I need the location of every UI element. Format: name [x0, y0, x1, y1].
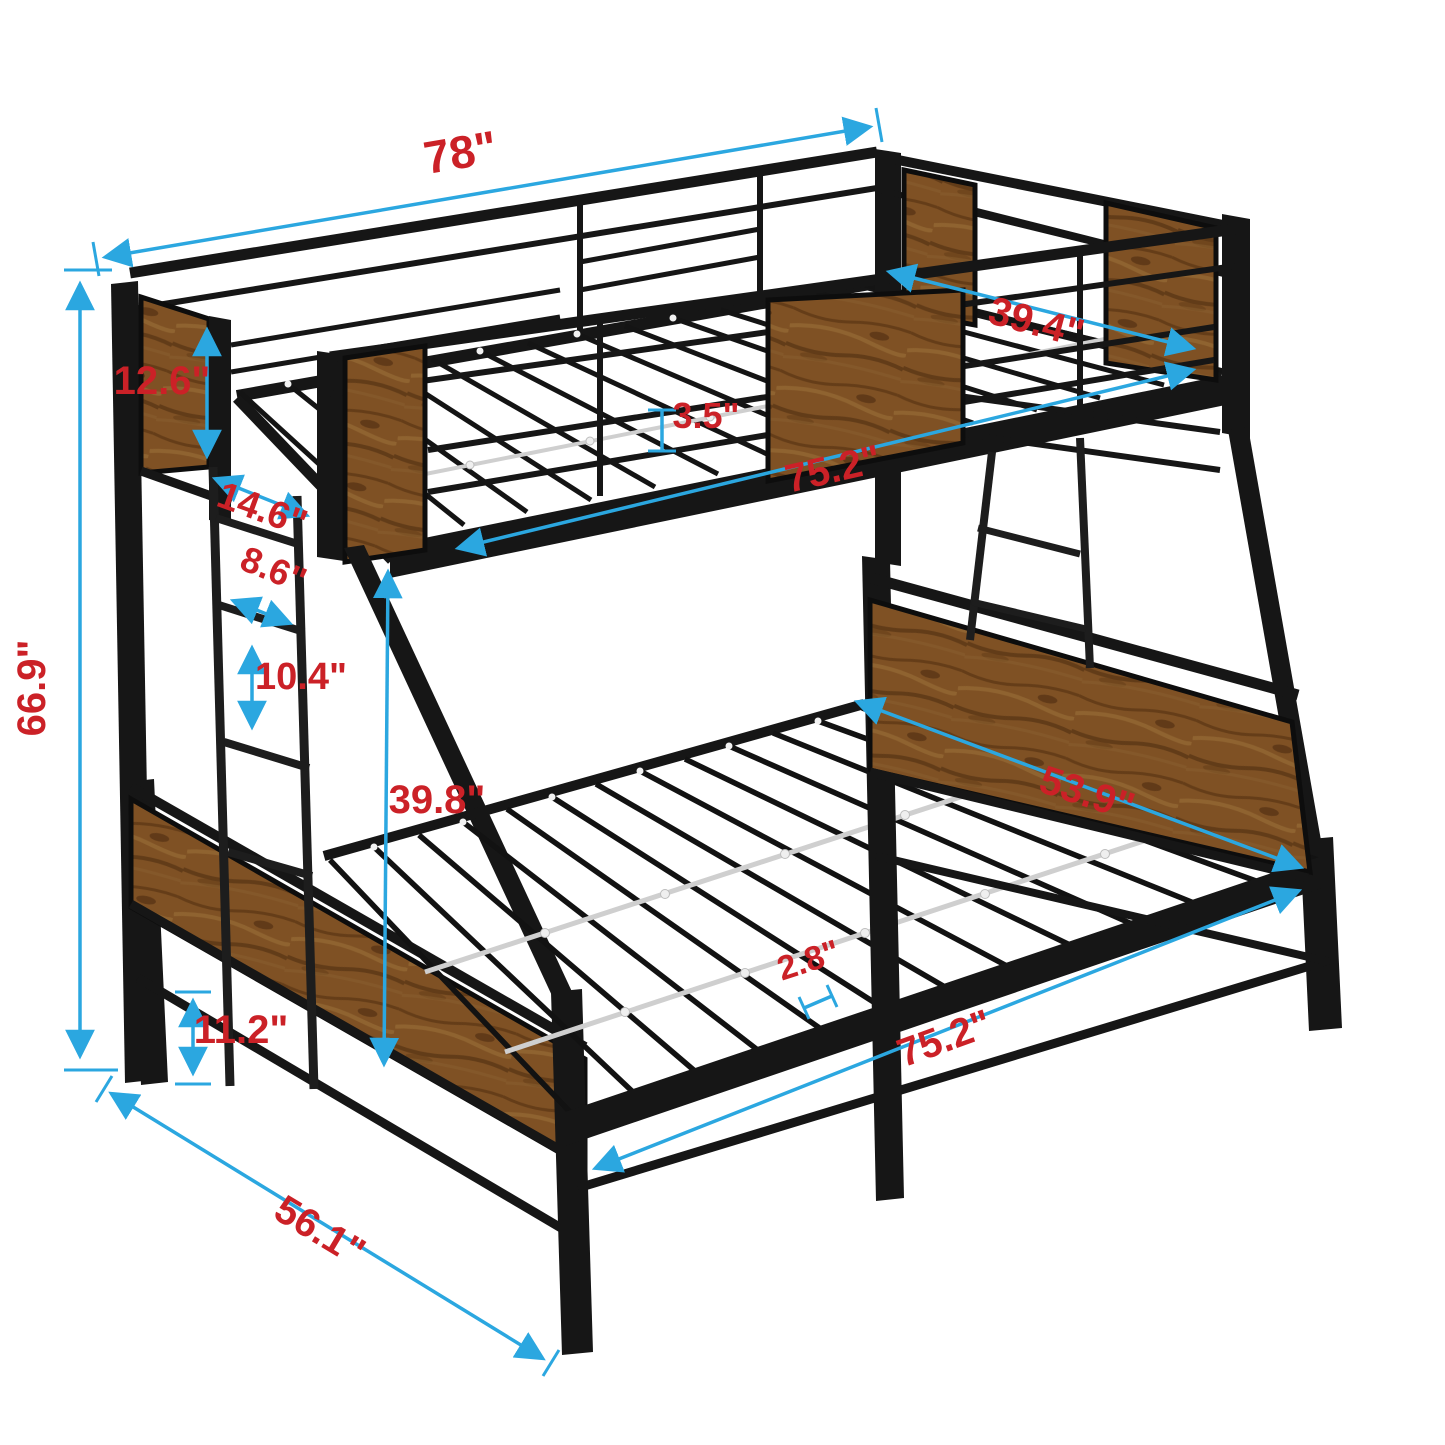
bunk-bed-dimension-diagram: 78" 66.9" 39.4" 12.6" 14.6" 8.6" 10.4"	[0, 0, 1445, 1445]
guardrail-left-post	[317, 351, 344, 561]
label-guardrail-gap: 3.5"	[672, 395, 739, 436]
label-headboard-panel-height: 12.6"	[114, 359, 211, 403]
right-front-post	[1222, 214, 1250, 438]
guardrail-left-wood-panel	[345, 346, 425, 562]
label-ladder-rung-spacing: 10.4"	[255, 656, 347, 698]
label-overall-height: 66.9"	[10, 640, 54, 737]
label-leg-clearance-height: 11.2"	[194, 1008, 289, 1052]
label-bunk-clearance-height: 39.8"	[389, 778, 486, 822]
